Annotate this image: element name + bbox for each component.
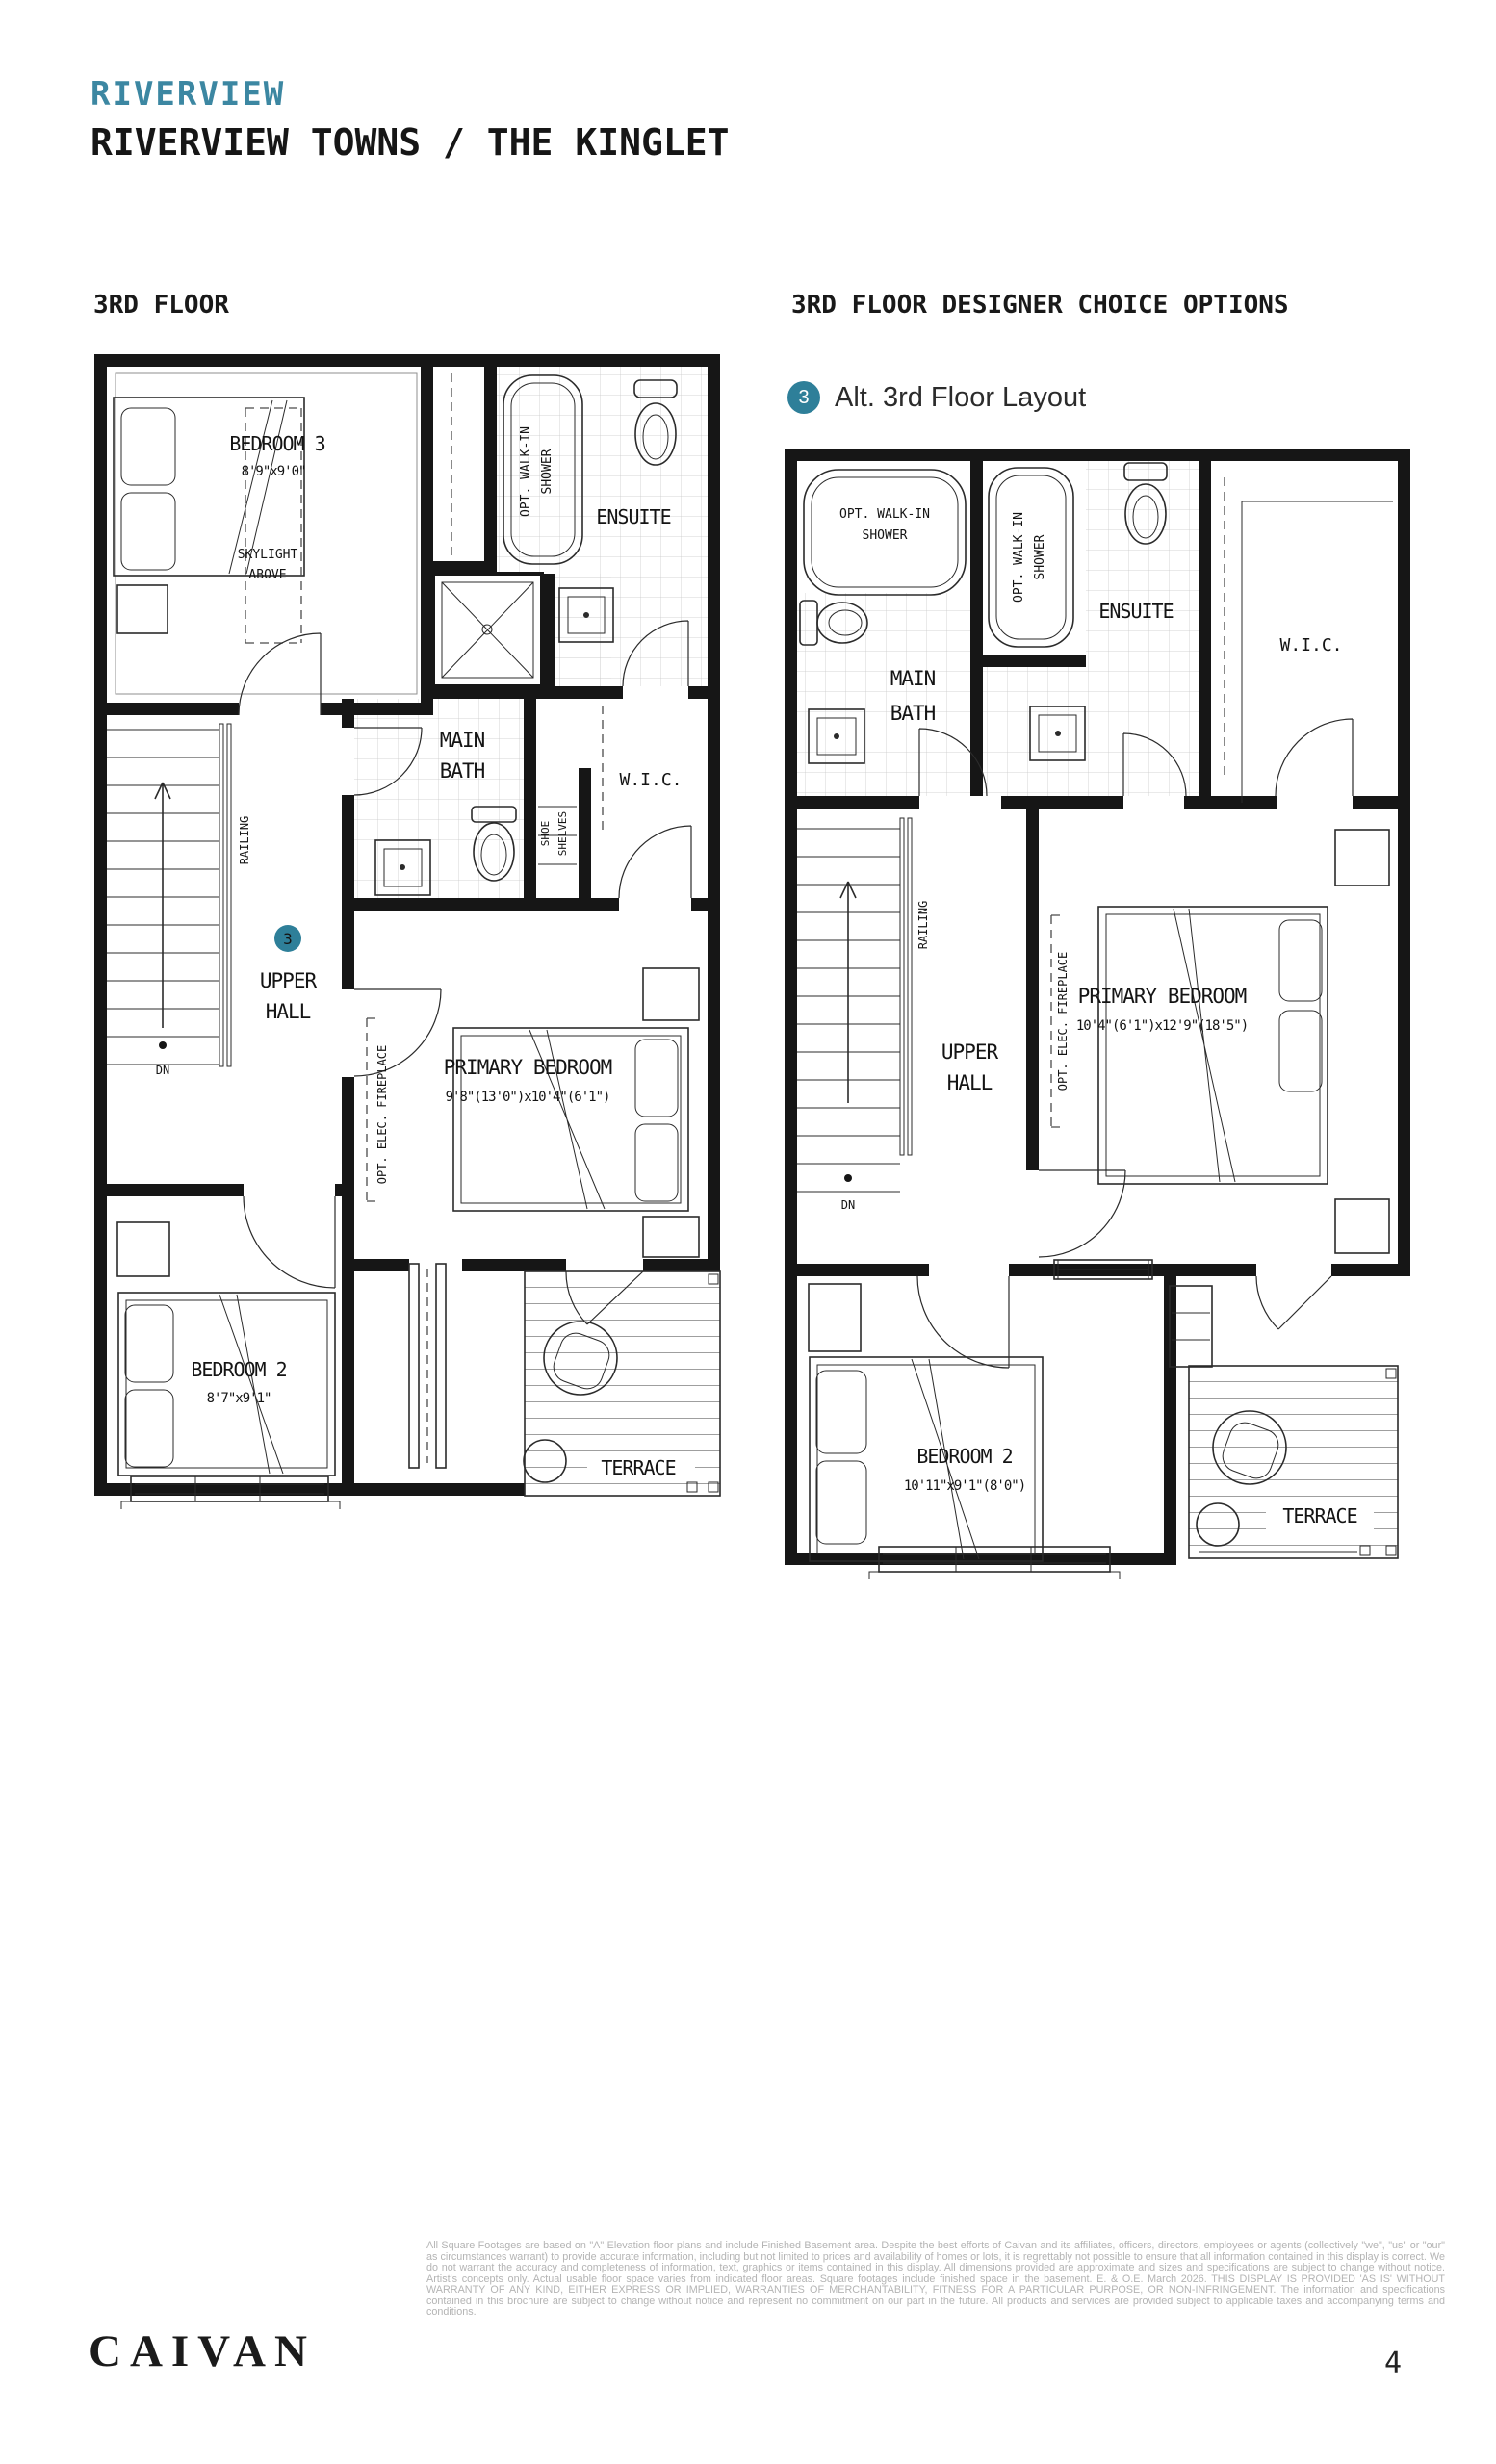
- dn-label: DN: [841, 1198, 855, 1212]
- bedroom2-dims: 10'11"x9'1"(8'0"): [904, 1478, 1025, 1494]
- fireplace-label: OPT. ELEC. FIREPLACE: [1056, 952, 1070, 1091]
- upper-hall: UPPER HALL: [941, 1040, 999, 1094]
- primary-bedroom-room: OPT. ELEC. FIREPLACE PRIMARY BEDROOM 10'…: [1039, 830, 1389, 1279]
- badge-number: 3: [283, 930, 293, 948]
- alt-layout-legend: 3 Alt. 3rd Floor Layout: [787, 381, 1086, 414]
- skylight-label2: ABOVE: [248, 568, 286, 582]
- nightstand-icon: [643, 968, 699, 1020]
- bedroom3-dims: 8'9"x9'0": [242, 464, 306, 479]
- dresser-icon: [117, 585, 168, 633]
- ensuite-label: ENSUITE: [1098, 600, 1173, 623]
- railing-icon: [908, 818, 912, 1155]
- main-bath-label2: BATH: [440, 759, 485, 783]
- opt-shower-label2: SHOWER: [540, 449, 555, 494]
- alt-layout-label: Alt. 3rd Floor Layout: [835, 382, 1086, 414]
- window-bay: [409, 1264, 446, 1468]
- bedroom3-label: BEDROOM 3: [229, 432, 324, 455]
- upper-hall: 3 UPPER HALL: [260, 925, 318, 1023]
- primary-bedroom-label: PRIMARY BEDROOM: [1078, 985, 1247, 1008]
- ensuite-label: ENSUITE: [596, 505, 670, 528]
- wic-room: W.I.C.: [1225, 477, 1393, 803]
- opt-shower-label2: SHOWER: [1033, 534, 1047, 579]
- upper-hall-label: UPPER: [941, 1040, 999, 1064]
- right-plan-heading: 3RD FLOOR DESIGNER CHOICE OPTIONS: [791, 291, 1289, 320]
- railing-icon: [227, 724, 231, 1066]
- page-number: 4: [1384, 2347, 1402, 2380]
- floorplan-alt-3rd-floor: OPT. WALK-IN SHOWER MAIN BATH OPT. WALK: [785, 449, 1420, 1579]
- door-swing: [1276, 719, 1353, 796]
- railing-icon: [219, 724, 223, 1066]
- left-plan-heading: 3RD FLOOR: [93, 291, 229, 320]
- brochure-page: RIVERVIEW RIVERVIEW TOWNS / THE KINGLET …: [0, 0, 1496, 2464]
- railing-icon: [900, 818, 904, 1155]
- opt-shower-label: OPT. WALK-IN: [519, 426, 533, 517]
- shower-stall-icon: [433, 574, 542, 686]
- window-icon: [869, 1547, 1120, 1579]
- opt-shower-label: OPT. WALK-IN: [1012, 512, 1026, 603]
- nightstand-icon: [1335, 1199, 1389, 1253]
- opt-shower-label: OPT. WALK-IN: [839, 507, 930, 522]
- floorplan-3rd-floor: BEDROOM 3 8'9"x9'0" SKYLIGHT ABOVE OPT. …: [94, 354, 730, 1509]
- main-bath-label: MAIN: [440, 729, 485, 752]
- bedroom2-label: BEDROOM 2: [191, 1358, 286, 1381]
- wic-label: W.I.C.: [1279, 635, 1342, 655]
- terrace: TERRACE: [524, 1271, 720, 1496]
- terrace-label: TERRACE: [1282, 1504, 1356, 1527]
- upper-hall-label2: HALL: [266, 1000, 311, 1023]
- dresser-icon: [809, 1284, 861, 1351]
- wic-room: SHOE SHELVES W.I.C.: [538, 706, 691, 898]
- shoe-shelves-label: SHOE: [539, 821, 552, 847]
- page-title: RIVERVIEW TOWNS / THE KINGLET: [90, 121, 729, 164]
- stairs: DN RAILING: [107, 724, 251, 1077]
- sink-icon: [375, 840, 430, 895]
- bedroom2-room: BEDROOM 2 10'11"x9'1"(8'0"): [809, 1276, 1120, 1579]
- upper-hall-label: UPPER: [260, 969, 318, 992]
- bedroom2-dims: 8'7"x9'1": [207, 1391, 271, 1406]
- stair-direction-arrow: [840, 882, 856, 1103]
- legal-disclaimer: All Square Footages are based on "A" Ele…: [426, 2241, 1445, 2319]
- primary-bedroom-label: PRIMARY BEDROOM: [444, 1056, 612, 1079]
- railing-label: RAILING: [916, 901, 930, 950]
- bed-icon: [118, 1293, 335, 1476]
- door-swing: [1256, 1276, 1331, 1329]
- shoe-shelves-label2: SHELVES: [556, 811, 569, 856]
- bed-icon: [1098, 907, 1328, 1184]
- railing-label: RAILING: [238, 816, 251, 865]
- fireplace-label: OPT. ELEC. FIREPLACE: [375, 1045, 389, 1185]
- primary-bedroom-room: OPT. ELEC. FIREPLACE PRIMARY BEDROOM 9'8…: [354, 968, 699, 1257]
- skylight-label: SKYLIGHT: [238, 548, 298, 562]
- bedroom2-label: BEDROOM 2: [916, 1445, 1012, 1468]
- primary-bedroom-dims: 9'8"(13'0")x10'4"(6'1"): [446, 1090, 610, 1105]
- wic-label: W.I.C.: [619, 770, 682, 790]
- stair-direction-arrow: [155, 783, 170, 1028]
- caivan-logo: CAIVAN: [89, 2325, 316, 2377]
- upper-hall-label2: HALL: [947, 1071, 993, 1094]
- bedroom2-room: BEDROOM 2 8'7"x9'1": [117, 1196, 340, 1509]
- bedroom3-room: BEDROOM 3 8'9"x9'0" SKYLIGHT ABOVE: [114, 373, 451, 715]
- primary-bedroom-dims: 10'4"(6'1")x12'9"(18'5"): [1076, 1018, 1248, 1034]
- community-name: RIVERVIEW: [90, 75, 285, 114]
- terrace-label: TERRACE: [601, 1456, 675, 1479]
- main-bath-label: MAIN: [890, 667, 936, 690]
- door-swing: [619, 826, 691, 898]
- nightstand-icon: [1335, 830, 1389, 885]
- stairs: DN RAILING: [797, 818, 930, 1212]
- nightstand-icon: [643, 1217, 699, 1257]
- door-swing: [917, 1276, 1009, 1368]
- door-swing: [244, 1196, 335, 1288]
- door-swing: [239, 633, 321, 715]
- opt-shower-label2: SHOWER: [863, 528, 908, 543]
- option-3-badge: 3: [787, 381, 820, 414]
- main-bath-label2: BATH: [890, 702, 936, 725]
- dresser-icon: [117, 1222, 169, 1276]
- dn-label: DN: [156, 1064, 169, 1077]
- terrace: TERRACE: [1189, 1276, 1398, 1558]
- bathtub-icon: [989, 468, 1073, 647]
